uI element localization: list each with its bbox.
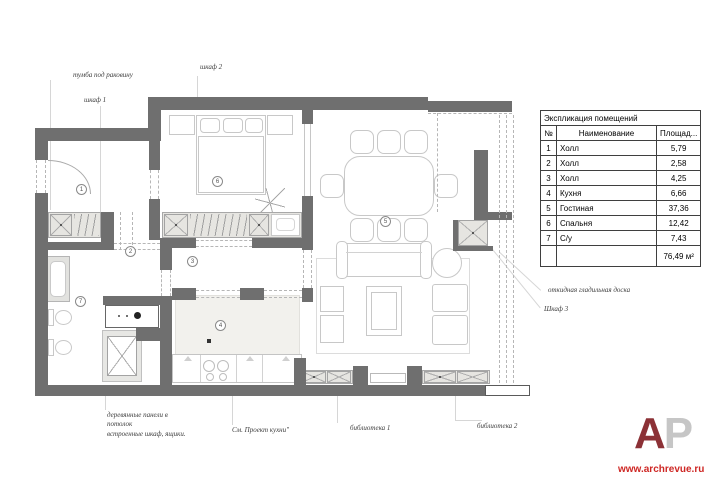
- column-header-num: №: [541, 126, 557, 141]
- wall-pier: [240, 288, 264, 300]
- wall-pier: [172, 288, 196, 300]
- window-sill: [428, 113, 512, 114]
- cell-name: С/у: [557, 231, 657, 246]
- wardrobe-panel: [164, 214, 188, 236]
- wall-end-box: [485, 385, 530, 396]
- cell-area: 7,43: [657, 231, 701, 246]
- table-row: 4 Кухня 6,66: [541, 186, 701, 201]
- wall-pier: [101, 212, 114, 250]
- annotation-closet-2: шкаф 2: [200, 63, 222, 71]
- wall: [149, 199, 160, 240]
- window-line: [499, 115, 500, 383]
- empty-cell: [541, 246, 557, 267]
- room-marker-1: 1: [76, 184, 87, 195]
- wall: [148, 97, 428, 110]
- logo-letter-a: А: [634, 409, 664, 458]
- wall: [160, 238, 196, 248]
- side-table: [320, 315, 344, 343]
- table-row: 5 Гостиная 37,36: [541, 201, 701, 216]
- column-mark: [207, 339, 211, 343]
- wall-pier: [407, 366, 422, 385]
- sofa: [338, 243, 430, 277]
- door-opening: [311, 250, 312, 288]
- pillow: [200, 118, 220, 133]
- explication-table: Экспликация помещений № Наименование Пло…: [540, 110, 701, 267]
- door-opening: [45, 160, 46, 193]
- room-marker-7: 7: [75, 296, 86, 307]
- leader-line: [105, 396, 106, 410]
- table-row: 2 Холл 2,58: [541, 156, 701, 171]
- wall: [428, 101, 512, 112]
- annotation-vanity: тумба под раковину: [73, 71, 133, 79]
- leader-line: [100, 106, 101, 212]
- cell-area: 12,42: [657, 216, 701, 231]
- wall: [474, 150, 488, 212]
- table-title: Экспликация помещений: [541, 111, 701, 126]
- cell-num: 2: [541, 156, 557, 171]
- wardrobe-hangers: [74, 214, 99, 236]
- cell-name: Холл: [557, 156, 657, 171]
- passage-dashes: [132, 212, 133, 250]
- chair: [404, 218, 428, 242]
- side-table-round: [432, 248, 462, 278]
- bookshelf-panel: [424, 371, 456, 383]
- empty-cell: [557, 246, 657, 267]
- annotation-library-2: библиотека 2: [477, 422, 517, 430]
- armchair: [432, 315, 468, 345]
- cell-name: Спальня: [557, 216, 657, 231]
- chair: [404, 130, 428, 154]
- cell-area: 6,66: [657, 186, 701, 201]
- door-opening: [158, 170, 159, 199]
- blanket: [198, 136, 264, 193]
- kitchen-wood-ceiling-panel: [175, 295, 300, 357]
- vanity-cabinet: [105, 305, 159, 328]
- leader-line: [455, 396, 456, 420]
- toilet-bowl: [55, 310, 72, 325]
- leader-line: [337, 396, 338, 423]
- column-header-area: Площад...: [657, 126, 701, 141]
- annotation-library-1: библиотека 1: [350, 424, 390, 432]
- cell-name: Холл: [557, 171, 657, 186]
- door-opening: [196, 246, 252, 247]
- counter-divider: [236, 355, 237, 382]
- wall: [453, 246, 493, 251]
- room-marker-3: 3: [187, 256, 198, 267]
- cell-name: Кухня: [557, 186, 657, 201]
- leader-line: [455, 420, 482, 421]
- chair: [377, 130, 401, 154]
- table-title-row: Экспликация помещений: [541, 111, 701, 126]
- cell-area: 2,58: [657, 156, 701, 171]
- door-opening: [170, 270, 171, 296]
- tv-console: [370, 373, 406, 383]
- door-opening: [114, 243, 160, 244]
- door-opening: [264, 290, 302, 291]
- cell-area: 4,25: [657, 171, 701, 186]
- door-opening: [264, 297, 302, 298]
- sofa-armrest: [420, 241, 432, 279]
- website-watermark: www.archrevue.ru: [618, 464, 704, 475]
- wall-pier: [294, 358, 306, 385]
- wall: [149, 141, 160, 170]
- table-row: 6 Спальня 12,42: [541, 216, 701, 231]
- sofa-back-line: [346, 252, 422, 253]
- shower: [107, 336, 137, 376]
- pillow: [245, 118, 263, 133]
- total-area: 76,49 м²: [657, 246, 701, 267]
- wardrobe-panel: [50, 214, 72, 236]
- wardrobe-hangers: [190, 214, 247, 236]
- door-opening: [196, 290, 240, 291]
- room-marker-2: 2: [125, 246, 136, 257]
- cell-num: 3: [541, 171, 557, 186]
- nightstand: [169, 115, 195, 135]
- door-opening: [114, 249, 160, 250]
- cell-num: 1: [541, 141, 557, 156]
- logo-letter-p: Р: [664, 409, 691, 458]
- wall: [35, 193, 48, 385]
- cabinet-mark: [282, 356, 290, 361]
- closet-3: [458, 220, 488, 246]
- door-opening: [36, 160, 37, 193]
- basin: [276, 218, 295, 231]
- cell-num: 4: [541, 186, 557, 201]
- dining-table: [344, 156, 434, 216]
- vanity-dot: [118, 315, 120, 317]
- chair: [350, 218, 374, 242]
- cabinet-mark: [246, 356, 254, 361]
- wardrobe-panel: [249, 214, 269, 236]
- annotation-built-in: встроенные шкаф, ящики.: [107, 430, 186, 438]
- wall-pier: [353, 366, 368, 385]
- stove-burner: [206, 373, 214, 381]
- table-row: 7 С/у 7,43: [541, 231, 701, 246]
- cell-name: Гостиная: [557, 201, 657, 216]
- column-header-name: Наименование: [557, 126, 657, 141]
- wall: [302, 110, 313, 124]
- table-total-row: 76,49 м²: [541, 246, 701, 267]
- leader-line: [232, 396, 233, 425]
- pillow: [223, 118, 243, 133]
- room-marker-4: 4: [215, 320, 226, 331]
- cell-area: 37,36: [657, 201, 701, 216]
- glazed-partition: [310, 124, 311, 196]
- door-opening: [303, 250, 304, 288]
- bookshelf-panel: [327, 371, 351, 383]
- bathtub-inner: [50, 261, 66, 297]
- wall: [103, 296, 162, 305]
- wall: [35, 128, 161, 141]
- wall: [48, 242, 101, 250]
- window-line: [506, 115, 507, 383]
- wall: [302, 196, 313, 250]
- annotation-closet-1: шкаф 1: [84, 96, 106, 104]
- door-opening: [196, 240, 252, 241]
- passage-dashes: [120, 212, 121, 250]
- cell-num: 5: [541, 201, 557, 216]
- room-marker-6: 6: [212, 176, 223, 187]
- counter-divider: [262, 355, 263, 382]
- cell-name: Холл: [557, 141, 657, 156]
- leader-line: [197, 76, 198, 97]
- zone-boundary: [437, 113, 438, 212]
- sofa-armrest: [336, 241, 348, 279]
- armchair: [432, 284, 468, 312]
- vanity-sink: [134, 312, 141, 319]
- bidet-bowl: [55, 340, 72, 355]
- room-marker-5: 5: [380, 216, 391, 227]
- nightstand: [267, 115, 293, 135]
- vanity-dot: [126, 315, 128, 317]
- wall: [252, 238, 302, 248]
- bookshelf-panel: [457, 371, 488, 383]
- stove-burner: [219, 373, 227, 381]
- door-opening: [196, 297, 240, 298]
- annotation-kitchen-project: См. Проект кухни": [232, 426, 289, 434]
- bidet-tank: [48, 339, 54, 356]
- cabinet-mark: [184, 356, 192, 361]
- annotation-ironing-board: откидная гладильная доска: [548, 286, 630, 294]
- wall-pier: [302, 288, 313, 302]
- side-table: [320, 286, 344, 312]
- cell-num: 7: [541, 231, 557, 246]
- chair: [320, 174, 344, 198]
- wall: [35, 385, 485, 396]
- door-opening: [150, 170, 151, 199]
- stove-burner: [203, 360, 215, 372]
- floor-plan-sheet: 1 2 3 4 5 6 7 тумба под раковину шкаф 1 …: [0, 0, 725, 500]
- coffee-table-inner: [371, 292, 397, 330]
- glazed-partition: [304, 124, 305, 196]
- window-line: [513, 115, 514, 383]
- stove-burner: [217, 360, 229, 372]
- annotation-wood-panels: деревянные панели в потолок: [107, 411, 191, 430]
- toilet-tank: [48, 309, 54, 326]
- wall: [136, 328, 162, 341]
- door-opening: [161, 270, 162, 296]
- table-row: 1 Холл 5,79: [541, 141, 701, 156]
- cell-area: 5,79: [657, 141, 701, 156]
- cell-num: 6: [541, 216, 557, 231]
- logo: АР: [634, 412, 691, 456]
- table-header-row: № Наименование Площад...: [541, 126, 701, 141]
- chair: [350, 130, 374, 154]
- table-row: 3 Холл 4,25: [541, 171, 701, 186]
- counter-divider: [200, 355, 201, 382]
- annotation-closet-3: Шкаф 3: [544, 305, 568, 313]
